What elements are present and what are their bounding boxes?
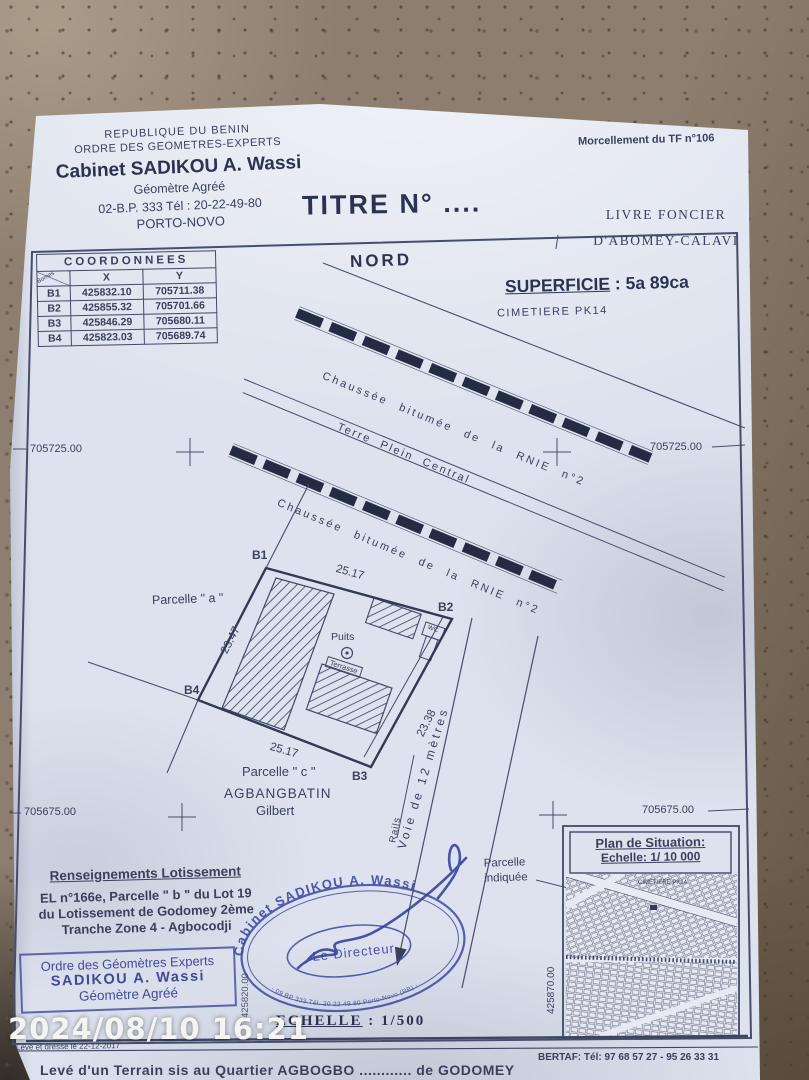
parcel-polygon — [88, 484, 452, 773]
cell-id: B2 — [37, 301, 70, 317]
table-corner-cell: Bornes — [37, 271, 70, 287]
renseignements-block: Renseignements Lotissement EL n°166e, Pa… — [27, 863, 265, 940]
col-header-x: X — [70, 269, 143, 286]
livre-foncier-line1: LIVRE FONCIER — [590, 202, 742, 228]
parcelle-indiquee-label: Parcelle indiquée — [483, 855, 528, 886]
coordinates-table: COORDONNEES Bornes X Y B1425832.10705711… — [36, 250, 218, 347]
table-row: B4425823.03705689.74 — [38, 328, 217, 347]
photo-scene: CIMETIERE PK14 Cabinet SADIKOU A. Wassi … — [0, 0, 809, 1080]
grid-crosses — [11, 438, 749, 831]
cell-id: B1 — [37, 286, 70, 302]
grid-label-vertical-right: 425870.00 — [546, 967, 559, 1014]
livre-foncier-line2: D'ABOMEY-CALAVI — [590, 228, 742, 254]
cell-x: 425823.03 — [71, 329, 144, 346]
cell-y: 705701.66 — [143, 298, 216, 315]
situation-title-box: Plan de Situation: Echelle: 1/ 10 000 — [572, 834, 729, 866]
superficie-label: SUPERFICIE — [505, 274, 611, 297]
rect-stamp: Ordre des Géomètres Experts SADIKOU A. W… — [19, 946, 237, 1014]
letterhead: REPUBLIQUE DU BENIN ORDRE DES GEOMETRES-… — [46, 121, 312, 236]
parcelle-c-label: Parcelle " c " — [242, 764, 316, 780]
grid-label-se: 705675.00 — [642, 804, 694, 818]
cell-x: 425846.29 — [71, 314, 144, 331]
corner-label-b4: B4 — [184, 683, 199, 698]
cell-y: 705711.38 — [143, 283, 216, 300]
owner-firstname: Gilbert — [256, 803, 294, 819]
livre-foncier: LIVRE FONCIER D'ABOMEY-CALAVI — [590, 202, 742, 253]
parcelle-indiquee-line2: indiquée — [484, 870, 528, 886]
echelle-value: : 1/500 — [368, 1013, 425, 1029]
corner-label-b2: B2 — [438, 600, 453, 615]
corner-label-b3: B3 — [352, 769, 367, 784]
corner-label-b1: B1 — [252, 548, 267, 563]
parcelle-indiquee-line1: Parcelle — [483, 855, 527, 871]
map-cimetiere-label: CIMETIERE PK14 — [638, 880, 688, 886]
cell-id: B3 — [38, 316, 71, 332]
page-title: TITRE N° .... — [302, 186, 482, 223]
situation-scale: Echelle: 1/ 10 000 — [572, 849, 729, 866]
cell-x: 425832.10 — [70, 284, 143, 301]
bottom-cut-text: Levé d'un Terrain sis au Quartier AGBOGB… — [40, 1062, 515, 1080]
owner-name: AGBANGBATIN — [224, 786, 332, 803]
grid-label-nw: 705725.00 — [30, 443, 82, 457]
cell-id: B4 — [38, 331, 71, 347]
cimetiere-label: CIMETIERE PK14 — [497, 305, 608, 322]
corner-label: Bornes — [36, 271, 56, 286]
oval-stamp: Cabinet SADIKOU A. Wassi - 09 BP 333 Tél… — [231, 845, 472, 1023]
cell-y: 705680.11 — [144, 313, 217, 330]
oval-stamp-center-text: Le Directeur — [312, 940, 396, 964]
cell-x: 425855.32 — [70, 299, 143, 316]
cell-y: 705689.74 — [144, 328, 217, 345]
puits-label: Puits — [331, 631, 354, 644]
parcelle-a-label: Parcelle " a " — [152, 591, 224, 609]
bertaf-note: BERTAF: Tél: 97 68 57 27 - 95 26 33 31 — [538, 1052, 719, 1065]
grid-label-sw: 705675.00 — [24, 806, 76, 820]
oval-stamp-bottom-text: - 09 BP 333 Tél. 20 22 49 80 Porto-Novo … — [270, 982, 420, 1008]
camera-timestamp: 2024/08/10 16:21 — [8, 1012, 309, 1046]
superficie-value: : 5a 89ca — [615, 272, 689, 294]
col-header-y: Y — [143, 268, 216, 285]
svg-text:- 09 BP 333 Tél. 20 22 49 80: - 09 BP 333 Tél. 20 22 49 80 Porto-Novo … — [270, 982, 420, 1008]
north-label: NORD — [350, 249, 413, 272]
grid-label-ne: 705725.00 — [650, 441, 702, 455]
